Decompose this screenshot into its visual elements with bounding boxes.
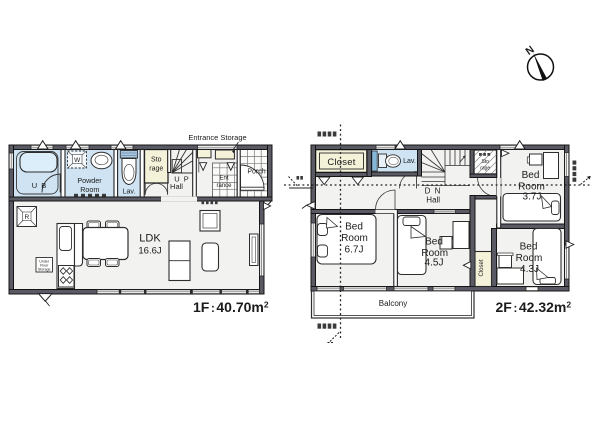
svg-text:Lav.: Lav. xyxy=(403,158,416,165)
svg-text:16.6J: 16.6J xyxy=(138,246,161,257)
svg-text:Bed: Bed xyxy=(522,170,540,181)
svg-text:Balcony: Balcony xyxy=(379,299,407,308)
svg-text:Closet: Closet xyxy=(327,157,355,168)
svg-text:Room: Room xyxy=(516,253,543,264)
svg-text:1F:40.70m2: 1F:40.70m2 xyxy=(193,299,269,315)
svg-text:Hall: Hall xyxy=(170,182,183,191)
svg-text:rage: rage xyxy=(149,166,163,173)
svg-text:R: R xyxy=(24,214,29,221)
svg-text:W: W xyxy=(74,157,81,164)
svg-text:Sto: Sto xyxy=(151,157,162,164)
svg-text:LDK: LDK xyxy=(139,233,161,245)
svg-text:Storage: Storage xyxy=(38,268,51,272)
svg-text:Bed: Bed xyxy=(520,242,538,253)
svg-text:Powder: Powder xyxy=(77,176,102,185)
svg-text:U B: U B xyxy=(32,181,48,190)
svg-text:3.7J: 3.7J xyxy=(523,192,542,203)
svg-text:Entrance Storage: Entrance Storage xyxy=(188,133,246,142)
svg-text:Room: Room xyxy=(341,233,368,244)
svg-text:Ent: Ent xyxy=(219,176,228,182)
svg-text:Bed: Bed xyxy=(345,222,363,233)
svg-text:Porch: Porch xyxy=(247,169,265,176)
svg-text:Lav.: Lav. xyxy=(123,189,136,196)
svg-text:2F:42.32m2: 2F:42.32m2 xyxy=(496,299,572,315)
svg-text:Bed: Bed xyxy=(425,237,443,248)
svg-text:4.3J: 4.3J xyxy=(520,264,539,275)
svg-text:Sto: Sto xyxy=(481,159,489,165)
svg-text:Closet: Closet xyxy=(479,259,485,276)
svg-text:Room: Room xyxy=(80,185,99,194)
svg-text:rage: rage xyxy=(480,166,490,172)
svg-text:rance: rance xyxy=(216,183,232,189)
svg-text:4.5J: 4.5J xyxy=(425,258,444,269)
svg-text:Hall: Hall xyxy=(426,196,440,205)
svg-text:6.7J: 6.7J xyxy=(345,245,364,256)
svg-text:D N: D N xyxy=(425,187,442,196)
